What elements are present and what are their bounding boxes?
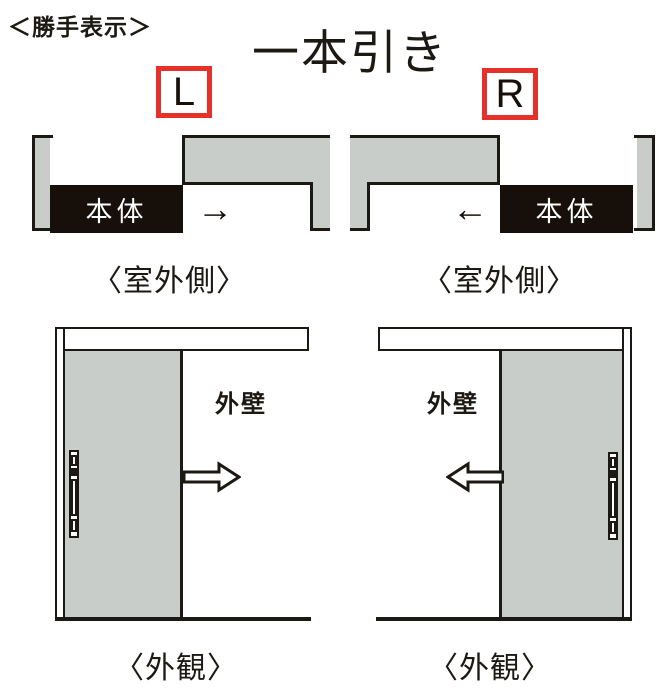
- plan-l-caption: 〈室外側〉: [92, 256, 242, 300]
- handing-note-label: ＜勝手表示＞: [8, 8, 152, 42]
- plan-r-door-panel: 本体: [500, 185, 633, 233]
- elevation-r-door-panel: [500, 351, 622, 618]
- plan-r-slide-arrow-icon: ←: [441, 190, 499, 228]
- elevation-r-caption: 〈外観〉: [415, 643, 565, 687]
- elevation-l-jamb: [55, 327, 65, 621]
- plan-l-wall-slab-left-line: [182, 135, 185, 185]
- elevation-l-floor-line: [55, 617, 311, 621]
- elevation-r-slide-arrow-icon: [446, 461, 504, 493]
- plan-l-slide-arrow-icon: →: [186, 190, 244, 228]
- plan-r-track-line: [367, 182, 500, 185]
- elevation-r-wall-label: 外壁: [418, 384, 488, 419]
- plan-r-wall-end-right-line: [652, 135, 655, 231]
- plan-r-wall-leg-bottom-line: [350, 228, 370, 231]
- handing-badge-right-letter: R: [496, 74, 525, 114]
- plan-l-track-line: [182, 182, 313, 185]
- elevation-l-wall-label: 外壁: [206, 384, 276, 419]
- elevation-r-floor-line: [376, 617, 632, 621]
- plan-l-wall-leg: [310, 182, 330, 231]
- plan-l-door-panel: 本体: [50, 185, 183, 233]
- handle-pull-bar: [610, 481, 616, 518]
- elevation-r-jamb: [622, 327, 632, 621]
- elevation-l-head-rail: [55, 327, 309, 351]
- plan-l-wall-end-top-line: [32, 135, 53, 138]
- page-title: 一本引き: [235, 14, 465, 83]
- elevation-r-door-handle: [608, 452, 618, 540]
- handle-pull-bar: [71, 479, 77, 516]
- elevation-r-head-rail: [378, 327, 632, 351]
- plan-r-wall-slab-top-line: [350, 135, 500, 138]
- handing-badge-left-letter: L: [173, 72, 195, 112]
- handle-bottom-cap: [610, 521, 616, 534]
- plan-r-wall-slab-right-line: [497, 135, 500, 185]
- handing-indication-diagram: ＜勝手表示＞ 一本引き L R 本体 → 〈室外側〉 ← 本体 〈室外側〉: [0, 0, 670, 692]
- plan-l-wall-leg-left-line: [310, 182, 313, 231]
- handle-lock-thumbturn: [610, 470, 616, 478]
- plan-r-door-panel-label: 本体: [536, 190, 598, 229]
- plan-r-wall-slab: [350, 135, 500, 182]
- plan-l-wall-leg-bottom-line: [310, 228, 330, 231]
- plan-r-caption: 〈室外側〉: [422, 256, 572, 300]
- elevation-l-slide-arrow-icon: [183, 461, 241, 493]
- handle-bottom-cap: [71, 519, 77, 532]
- plan-l-wall-slab: [182, 135, 330, 182]
- plan-l-door-panel-label: 本体: [86, 190, 148, 229]
- handle-lock-thumbturn: [71, 468, 77, 476]
- handle-top-cap: [610, 457, 616, 468]
- plan-r-wall-leg-right-line: [367, 182, 370, 231]
- elevation-l-caption: 〈外観〉: [101, 643, 251, 687]
- handle-top-cap: [71, 455, 77, 466]
- plan-r-wall-end-bottom-line: [634, 228, 655, 231]
- elevation-l-door-handle: [69, 450, 79, 538]
- handing-badge-left: L: [156, 66, 212, 118]
- handing-badge-right: R: [482, 68, 538, 120]
- elevation-l-door-panel: [65, 351, 183, 618]
- plan-l-wall-end-left-line: [32, 135, 35, 231]
- plan-l-wall-slab-top-line: [182, 135, 330, 138]
